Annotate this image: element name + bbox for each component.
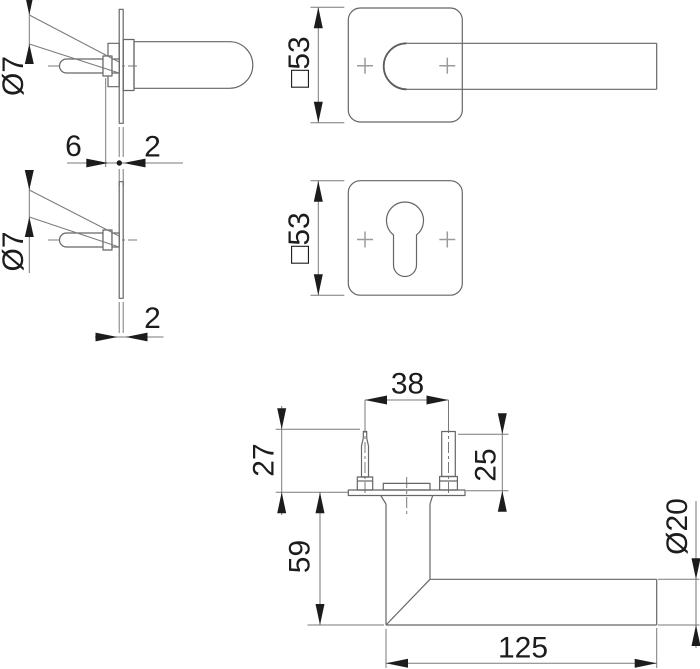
dim-screw-diameter-mid: Ø7 — [0, 170, 119, 273]
miter-edge — [386, 579, 430, 625]
threaded-stud — [440, 432, 458, 491]
dim-offset-and-thickness: 6 2 — [65, 78, 183, 186]
dim-screw-spacing: 38 — [365, 368, 449, 429]
dim-label-grip-diameter: Ø20 — [661, 498, 694, 555]
screw-position-marks — [357, 58, 455, 74]
view-escutcheon-front: □53 — [283, 181, 462, 296]
dim-pin-length: 27 — [248, 406, 361, 515]
lever-body — [381, 496, 657, 626]
dim-label-offset: 6 — [65, 130, 82, 163]
dim-rose-size-top: □53 — [283, 7, 344, 122]
dim-neck-height: 59 — [284, 492, 385, 625]
dim-label-rose-size-mid: □53 — [283, 212, 316, 264]
dim-screw-diameter-top: Ø7 — [0, 0, 119, 96]
dim-stud-length: 25 — [458, 413, 509, 511]
dim-plate-thickness: 2 — [95, 302, 164, 341]
fixing-screw-collar — [103, 56, 112, 76]
reference-dot — [117, 160, 122, 165]
dim-label-plate-thickness-top: 2 — [144, 131, 161, 164]
dim-label-screw-spacing: 38 — [391, 368, 424, 401]
view-lever-side: 38 27 25 59 — [248, 368, 700, 669]
dim-grip-diameter: Ø20 — [658, 498, 700, 648]
euro-cylinder-keyhole — [387, 202, 424, 276]
view-plate-side: Ø7 2 — [0, 170, 164, 341]
dim-label-lever-length: 125 — [498, 632, 548, 665]
rose-barrel — [134, 42, 253, 89]
view-lever-front: □53 — [283, 7, 657, 122]
dim-label-screw-diameter-mid: Ø7 — [0, 231, 30, 271]
lever-neck-arc — [384, 43, 407, 89]
technical-drawing-canvas: Ø7 6 2 Ø7 — [0, 0, 700, 669]
dim-label-pin-length: 27 — [248, 443, 281, 476]
dim-lever-length: 125 — [386, 628, 657, 668]
fixing-screw-collar — [103, 230, 112, 250]
door-handle-drawing: Ø7 6 2 Ø7 — [0, 0, 700, 669]
dim-label-screw-diameter-top: Ø7 — [0, 56, 30, 96]
rose-flange — [123, 40, 134, 91]
screw-position-marks — [357, 232, 455, 248]
pointed-fixing-pin — [357, 432, 372, 491]
dim-label-neck-height: 59 — [284, 540, 317, 573]
fixing-screw-body — [60, 233, 104, 247]
dim-rose-size-mid: □53 — [283, 181, 344, 296]
view-rose-side: Ø7 6 2 — [0, 0, 253, 186]
dim-label-plate-thickness-mid: 2 — [144, 302, 161, 335]
dim-label-stud-length: 25 — [470, 448, 503, 481]
dim-label-rose-size-top: □53 — [283, 36, 316, 88]
